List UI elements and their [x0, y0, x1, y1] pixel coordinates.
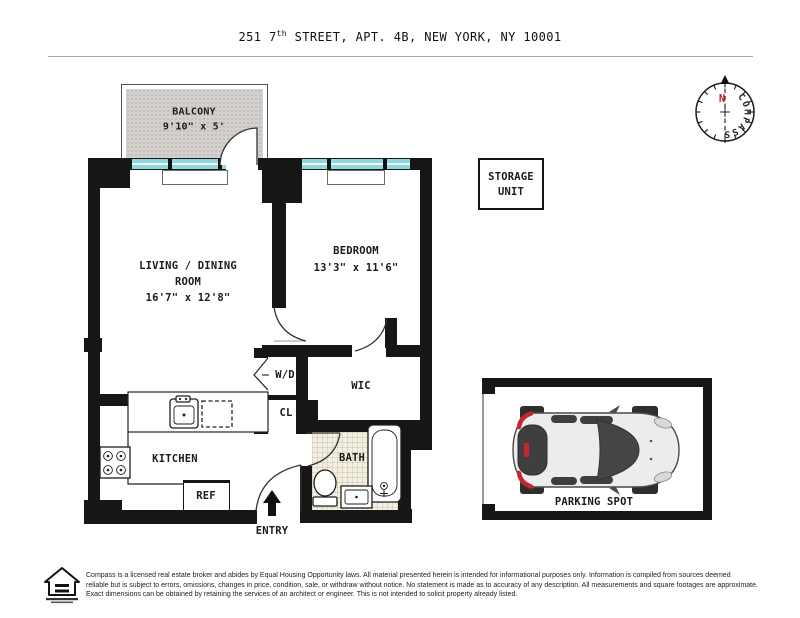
taillight [519, 414, 531, 428]
wall-segment [272, 203, 286, 308]
parking-wall [482, 378, 712, 387]
kitchen-counter [128, 392, 268, 484]
wic-door [355, 319, 387, 351]
wall-segment [88, 394, 130, 406]
living-room-dimensions: 16'7" x 12'8" [146, 292, 231, 304]
balcony-door-opening [226, 158, 258, 170]
parking-wall [482, 511, 712, 520]
walk-in-closet-label: WIC [351, 380, 371, 392]
bath-floor [312, 432, 398, 510]
refrigerator-label: REF [196, 490, 216, 502]
compass-letters: COMPASS [724, 92, 751, 138]
window-mullion [383, 159, 387, 169]
parking-wall [482, 504, 495, 520]
svg-text:A: A [735, 121, 746, 132]
wall-segment [420, 158, 432, 450]
car-top-view-icon [513, 405, 679, 495]
storage-label-line2: UNIT [498, 186, 524, 198]
svg-text:M: M [742, 109, 752, 115]
wall-segment [84, 338, 102, 352]
wall-segment [88, 158, 100, 513]
kitchen-label: KITCHEN [152, 453, 198, 465]
svg-text:C: C [735, 92, 746, 103]
parking-wall [703, 378, 712, 520]
svg-text:S: S [724, 128, 730, 139]
window-mullion [168, 159, 172, 169]
equal-housing-logo-icon [45, 568, 79, 603]
wall-segment [385, 318, 397, 348]
closet-label: CL [279, 407, 292, 419]
living-room-label-line1: LIVING / DINING [139, 260, 237, 272]
headlight [653, 470, 673, 484]
bath-label: BATH [339, 452, 365, 464]
balcony-dimensions: 9'10" x 5' [163, 122, 225, 133]
disclaimer-line1: Compass is a licensed real estate broker… [86, 571, 758, 581]
window-sill [327, 170, 385, 185]
wall-segment [262, 158, 302, 203]
entry-label: ENTRY [256, 525, 289, 537]
svg-text:P: P [739, 115, 750, 124]
stove-icon [100, 447, 130, 478]
washer-dryer-label: W/D [275, 369, 295, 381]
wall-segment [254, 348, 268, 358]
title-divider [48, 56, 753, 57]
wall-segment [398, 428, 411, 523]
windshield [597, 420, 639, 480]
entry-arrow-icon [263, 490, 281, 516]
wall-segment [312, 420, 398, 432]
floor-plan: 251 7th STREET, APT. 4B, NEW YORK, NY 10… [0, 0, 800, 618]
svg-text:O: O [739, 100, 750, 109]
rear-window [518, 425, 547, 475]
wall-segment [88, 510, 257, 524]
parking-label: PARKING SPOT [555, 496, 633, 508]
parking-entry-line [482, 387, 484, 511]
wall-segment [300, 466, 312, 511]
storage-label-line1: STORAGE [488, 171, 534, 183]
side-mirror [609, 487, 620, 495]
compass-ticks [696, 83, 754, 141]
kitchen-sink-icon [170, 396, 198, 428]
window [132, 159, 226, 169]
compass-north-label: N [719, 93, 725, 105]
wall-segment [268, 395, 296, 400]
page-title: 251 7th STREET, APT. 4B, NEW YORK, NY 10… [0, 29, 800, 44]
living-room-door [274, 307, 306, 341]
compass-north-arrow [721, 75, 730, 84]
parking-wall [482, 378, 495, 394]
closet-bifold-door [254, 400, 268, 424]
storage-unit-box [478, 158, 544, 210]
balcony-label: BALCONY [172, 107, 216, 118]
svg-text:S: S [730, 125, 739, 136]
window-mullion [218, 159, 222, 169]
disclaimer-line3: Exact dimensions can be obtained by reta… [86, 590, 758, 600]
compass-icon: N COMPASS [696, 75, 754, 143]
window-mullion [327, 159, 331, 169]
entry-door [256, 465, 301, 511]
disclaimer: Compass is a licensed real estate broker… [86, 571, 758, 600]
disclaimer-line2: reliable but is subject to errors, omiss… [86, 581, 758, 591]
side-mirror [609, 405, 620, 413]
window-sill [162, 170, 228, 185]
wall-segment [254, 424, 268, 434]
living-room-label-line2: ROOM [175, 276, 201, 288]
headlight [653, 416, 673, 430]
dishwasher-label: DW [211, 409, 223, 420]
wall-segment [300, 509, 412, 523]
bedroom-dimensions: 13'3" x 11'6" [314, 262, 399, 274]
washer-dryer-bifold-door [254, 358, 269, 390]
window [302, 159, 410, 169]
wall-segment [254, 392, 268, 400]
bedroom-label: BEDROOM [333, 245, 379, 257]
taillight [519, 473, 531, 487]
